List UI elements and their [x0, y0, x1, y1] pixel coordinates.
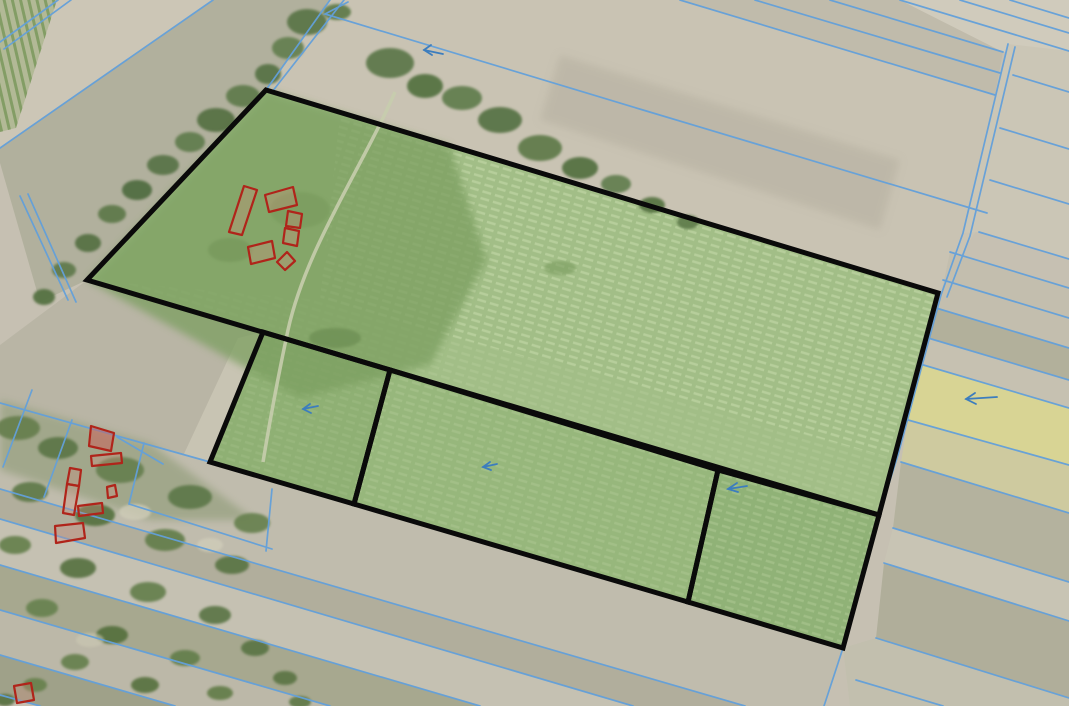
tree-blob — [366, 48, 414, 78]
building-outline — [107, 485, 117, 498]
building-outline — [14, 683, 34, 703]
tree-blob — [0, 536, 31, 554]
tree-blob — [215, 556, 249, 574]
tree-blob — [544, 261, 576, 275]
tree-blob — [60, 558, 96, 578]
tree-blob — [26, 599, 58, 617]
tree-blob — [147, 155, 179, 175]
tree-blob — [75, 234, 101, 252]
tree-blob — [130, 582, 166, 602]
tree-blob — [562, 157, 598, 179]
tree-blob — [273, 671, 297, 685]
tree-blob — [122, 180, 152, 200]
aerial-map[interactable] — [0, 0, 1069, 706]
tree-blob — [131, 677, 159, 693]
tree-blob — [199, 606, 231, 624]
tree-blob — [98, 205, 126, 223]
tree-blob — [12, 482, 48, 502]
tree-blob — [309, 328, 361, 348]
building-outline — [286, 211, 302, 228]
tree-blob — [272, 37, 304, 59]
tree-blob — [175, 132, 205, 152]
tree-blob — [38, 437, 78, 459]
tree-blob — [518, 135, 562, 161]
building-outline — [78, 503, 103, 516]
tree-blob — [234, 513, 270, 533]
tree-blob — [407, 74, 443, 98]
tree-blob — [61, 654, 89, 670]
building-outline — [283, 228, 299, 246]
ground-patch — [76, 633, 104, 647]
tree-blob — [168, 485, 212, 509]
map-viewport[interactable] — [0, 0, 1069, 706]
building-outline — [91, 453, 122, 466]
tree-blob — [208, 238, 252, 262]
tree-blob — [478, 107, 522, 133]
tree-blob — [207, 686, 233, 700]
tree-blob — [442, 86, 482, 110]
tree-blob — [33, 289, 55, 305]
